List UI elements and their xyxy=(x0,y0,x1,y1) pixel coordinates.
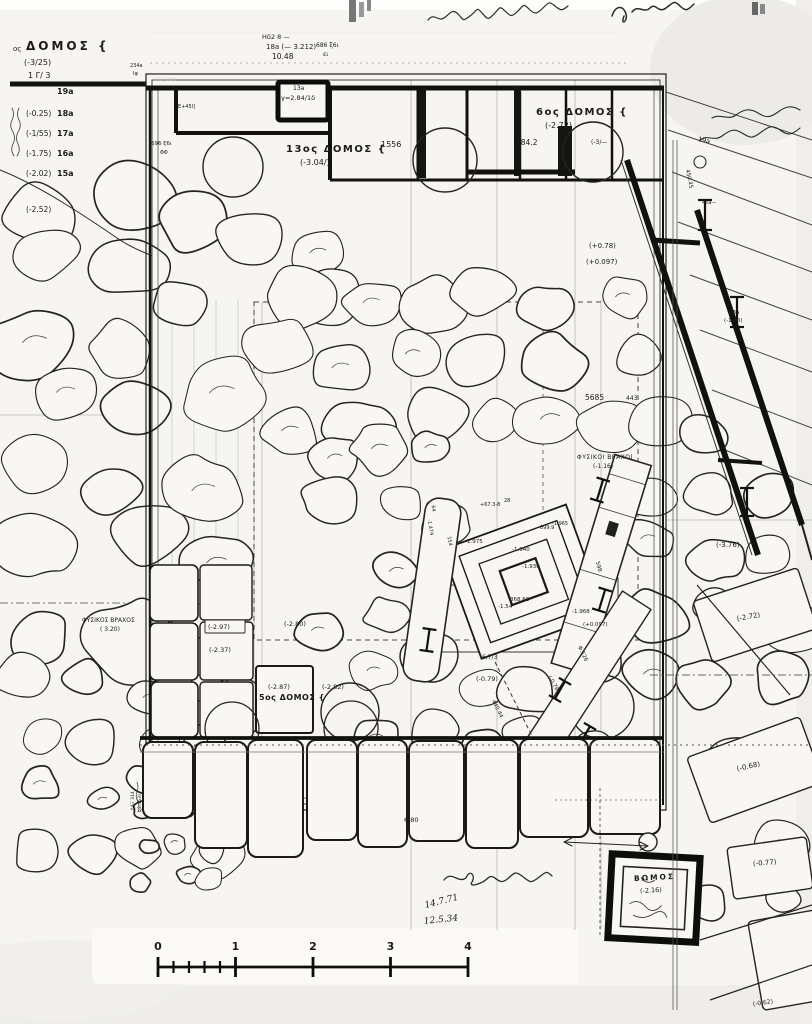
stone xyxy=(617,334,661,375)
stone xyxy=(159,191,227,253)
terrace-line xyxy=(672,172,812,225)
stone xyxy=(313,345,370,390)
stone xyxy=(683,473,732,515)
terrace-line xyxy=(700,330,812,372)
stone xyxy=(294,613,343,650)
slab-block xyxy=(687,717,812,824)
slab-block xyxy=(727,837,812,900)
orthostat-slab xyxy=(466,740,518,848)
dark-wall-fill xyxy=(514,86,521,176)
stone xyxy=(393,329,441,376)
orthostat-slab xyxy=(248,740,303,857)
ashlar-block xyxy=(150,565,198,621)
stone xyxy=(216,214,282,265)
stone xyxy=(412,431,450,462)
scale-backing xyxy=(92,928,578,984)
altar-structure xyxy=(608,854,700,942)
stone xyxy=(308,438,358,482)
small-circle-mark xyxy=(639,833,657,851)
stone xyxy=(17,829,58,872)
ink-smudge xyxy=(760,4,765,14)
scan-blotch xyxy=(650,0,812,145)
handwritten-annotation xyxy=(444,872,552,885)
ashlar-block xyxy=(151,682,198,737)
orthostat-slab xyxy=(520,739,588,837)
stone xyxy=(65,719,114,764)
stone xyxy=(89,318,150,378)
handwritten-ring xyxy=(694,156,706,168)
stone xyxy=(446,334,504,386)
orthostat-slab xyxy=(590,739,660,834)
stone xyxy=(68,835,117,874)
stone xyxy=(349,651,398,690)
stone xyxy=(100,381,171,434)
ashlar-block xyxy=(200,565,252,620)
wall-line xyxy=(652,240,700,243)
orthostat-slab xyxy=(307,740,357,840)
orthostat-slab xyxy=(358,740,407,847)
ink-smudge xyxy=(367,0,371,11)
stone xyxy=(301,477,357,524)
stone xyxy=(140,840,160,853)
stone xyxy=(0,513,78,576)
stone xyxy=(23,719,61,754)
stone xyxy=(260,407,317,454)
plan-drawing xyxy=(0,0,812,1024)
stone xyxy=(363,597,410,632)
stone xyxy=(36,368,97,420)
i-beam-stroke xyxy=(584,723,596,730)
stone xyxy=(473,398,519,441)
tiny-vertical-text-scribble xyxy=(17,108,21,156)
stone xyxy=(603,277,647,319)
ink-smudge xyxy=(359,2,364,17)
orthostat-slab xyxy=(409,741,464,841)
stone xyxy=(517,287,575,330)
domos5-block xyxy=(256,666,313,733)
dark-wall-fill xyxy=(419,88,426,178)
stone xyxy=(686,540,745,581)
ink-smudge xyxy=(349,0,356,22)
stone xyxy=(1,434,67,493)
stone xyxy=(87,787,119,809)
stone xyxy=(242,319,313,373)
stone xyxy=(62,659,103,695)
orthostat-slab xyxy=(195,742,247,848)
site-plan-sheet: ος ΔΟΜΟΣ { (-3/25) 1 Γ/ 3 19a(-0.25)18a(… xyxy=(0,0,812,1024)
stone xyxy=(497,667,553,712)
stone xyxy=(22,766,59,799)
ashlar-block xyxy=(200,682,253,737)
stone xyxy=(380,487,420,520)
stone xyxy=(164,834,185,854)
tiny-vertical-text-scribble xyxy=(11,108,15,156)
stone xyxy=(13,230,80,281)
stone xyxy=(522,332,589,391)
stone xyxy=(512,397,580,444)
labeled-box-13a xyxy=(278,82,328,120)
orthostat-slab xyxy=(143,742,193,818)
plan-path xyxy=(564,842,648,846)
column-base-circle xyxy=(203,137,263,197)
terrace-line xyxy=(690,275,812,320)
ink-smudge xyxy=(752,2,758,15)
stone xyxy=(153,282,207,326)
scan-edge xyxy=(0,0,812,10)
ashlar-block xyxy=(150,623,198,680)
elevation-label-box xyxy=(205,620,245,633)
stone xyxy=(676,660,731,710)
stone xyxy=(130,873,151,892)
